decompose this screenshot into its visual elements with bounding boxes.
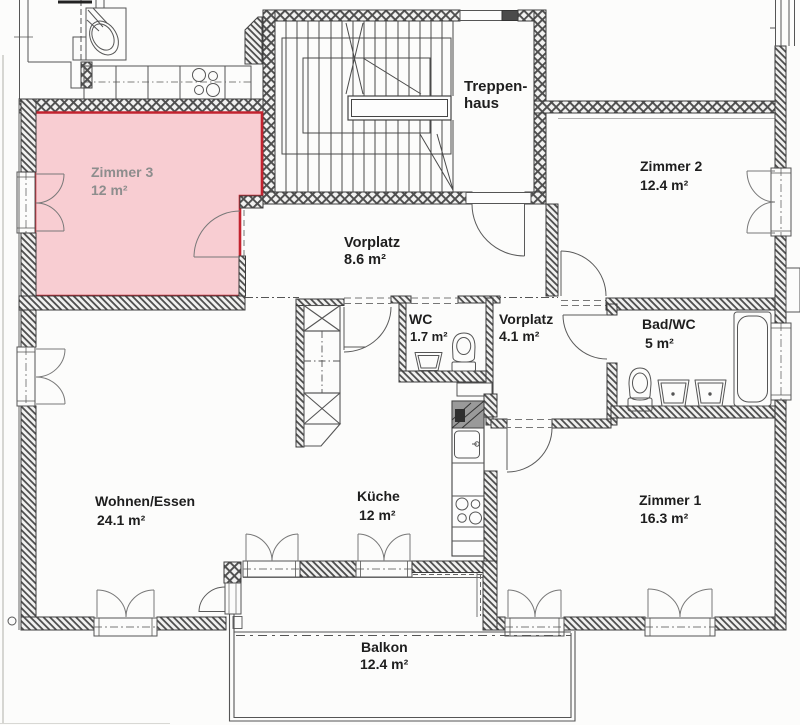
svg-text:Küche: Küche <box>357 488 400 504</box>
svg-text:Vorplatz: Vorplatz <box>499 311 553 327</box>
svg-text:Wohnen/Essen: Wohnen/Essen <box>95 493 195 509</box>
svg-text:12 m²: 12 m² <box>359 507 396 523</box>
svg-text:WC: WC <box>409 311 432 327</box>
svg-text:Zimmer 1: Zimmer 1 <box>639 492 701 508</box>
svg-text:5 m²: 5 m² <box>645 335 674 351</box>
svg-text:haus: haus <box>464 95 499 112</box>
svg-text:Vorplatz: Vorplatz <box>344 235 400 251</box>
svg-text:Balkon: Balkon <box>361 639 408 655</box>
svg-text:Zimmer 2: Zimmer 2 <box>640 158 702 174</box>
svg-text:12 m²: 12 m² <box>91 182 128 198</box>
svg-text:4.1 m²: 4.1 m² <box>499 328 540 344</box>
svg-text:Zimmer 3: Zimmer 3 <box>91 164 153 180</box>
svg-text:Treppen-: Treppen- <box>464 78 527 95</box>
svg-text:24.1 m²: 24.1 m² <box>97 512 146 528</box>
svg-text:8.6 m²: 8.6 m² <box>344 252 386 268</box>
svg-text:12.4 m²: 12.4 m² <box>640 177 689 193</box>
svg-text:12.4 m²: 12.4 m² <box>360 656 409 672</box>
svg-text:1.7 m²: 1.7 m² <box>410 329 448 344</box>
svg-text:16.3 m²: 16.3 m² <box>640 510 689 526</box>
svg-text:Bad/WC: Bad/WC <box>642 316 696 332</box>
